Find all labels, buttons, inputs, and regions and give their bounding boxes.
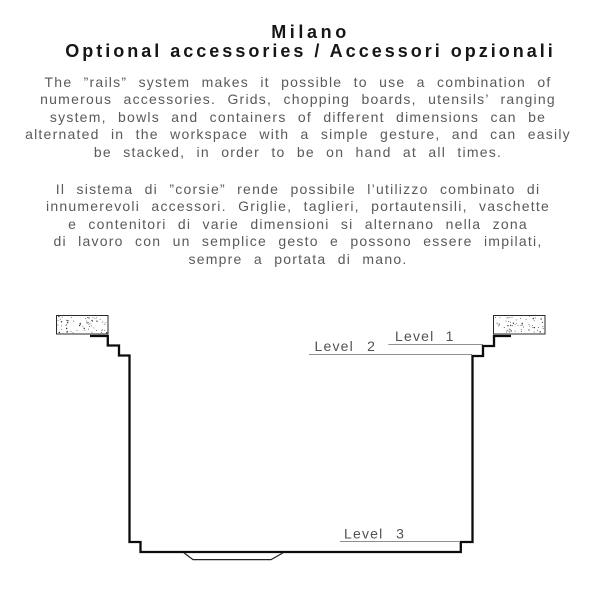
svg-text:Level 1: Level 1 <box>395 328 455 344</box>
svg-text:Level 2: Level 2 <box>315 338 377 354</box>
svg-text:Level 3: Level 3 <box>344 526 405 542</box>
